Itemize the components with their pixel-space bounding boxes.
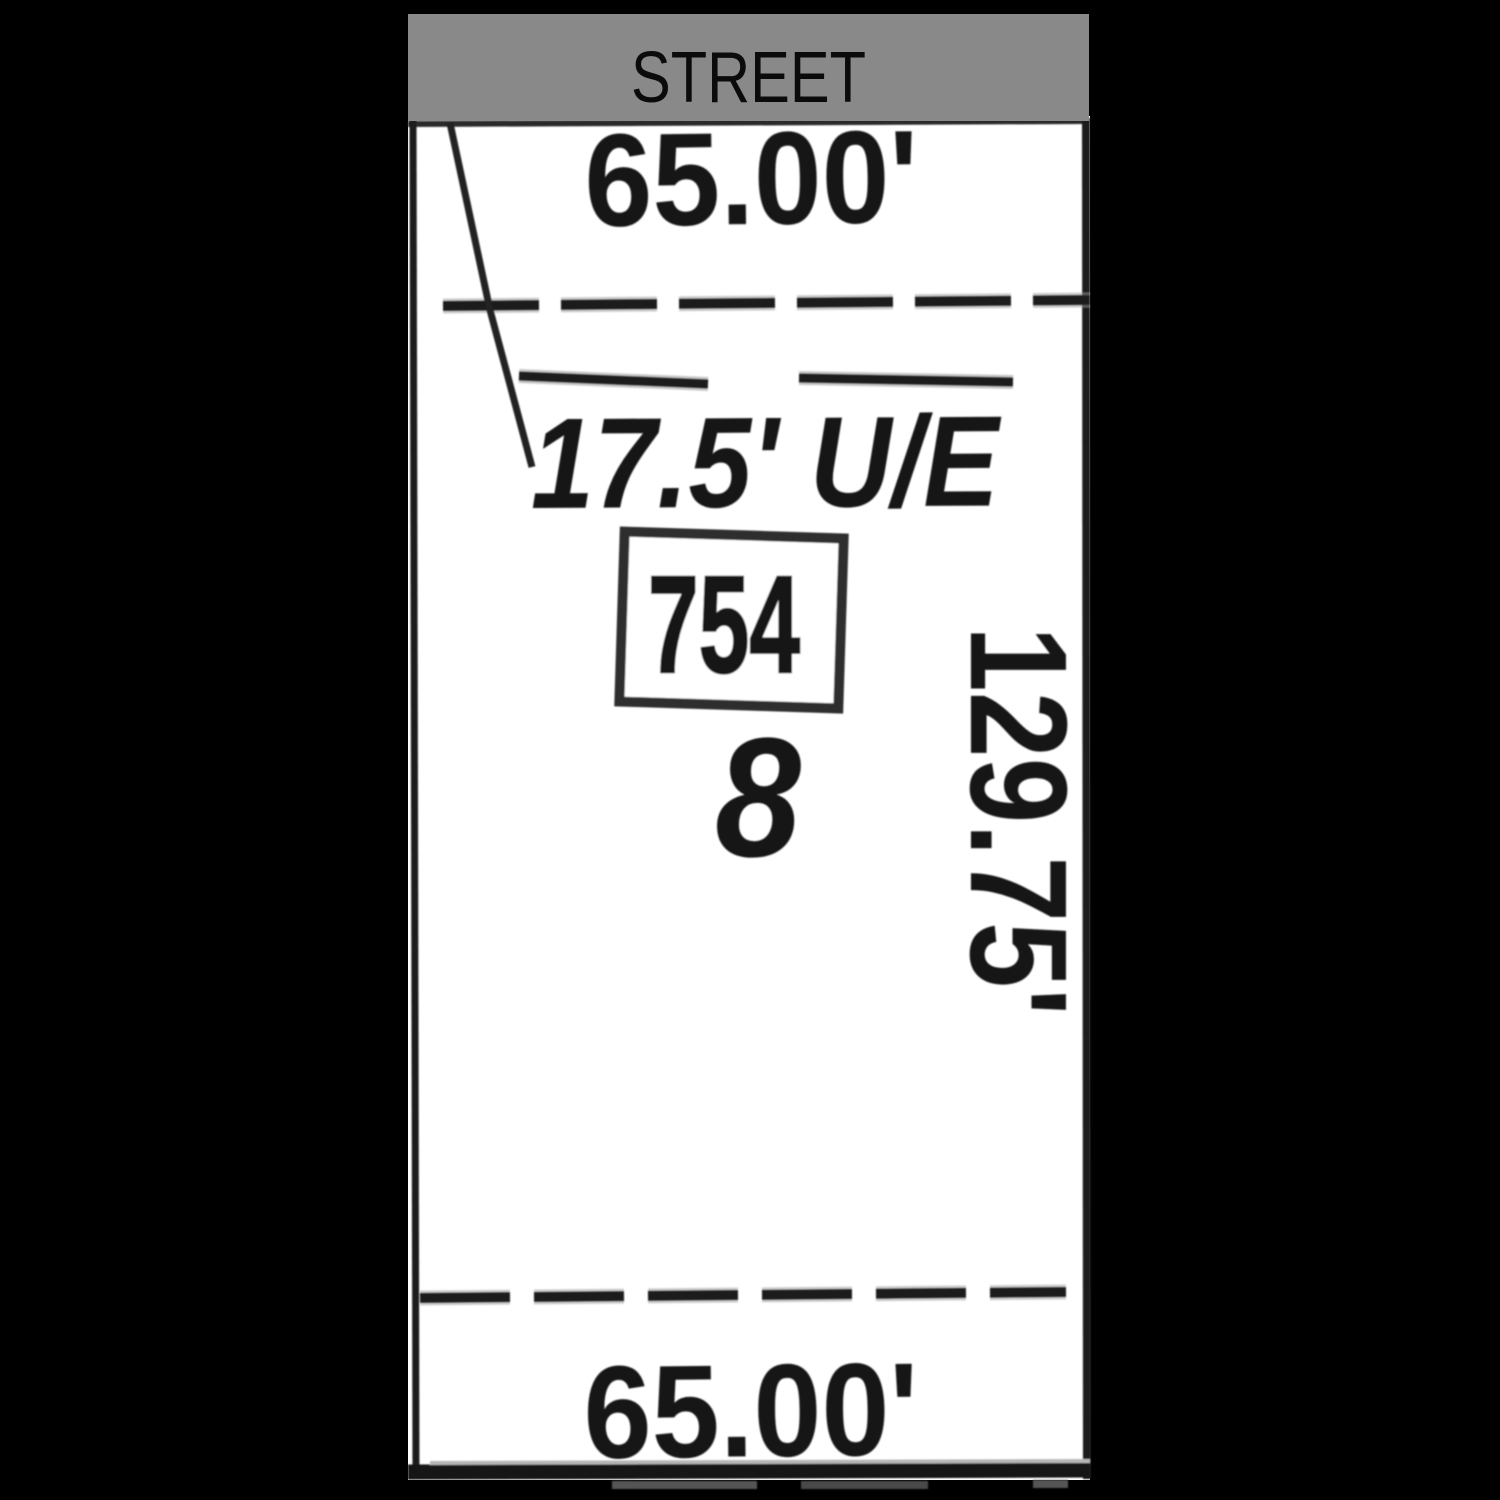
svg-text:STREET: STREET: [631, 38, 866, 118]
svg-text:754: 754: [648, 548, 800, 702]
svg-text:129.75': 129.75': [941, 626, 1095, 1016]
svg-text:8: 8: [715, 703, 801, 893]
svg-text:65.00': 65.00': [584, 103, 920, 254]
svg-text:65.00': 65.00': [583, 1336, 920, 1487]
svg-text:17.5' U/E: 17.5' U/E: [530, 390, 1002, 536]
